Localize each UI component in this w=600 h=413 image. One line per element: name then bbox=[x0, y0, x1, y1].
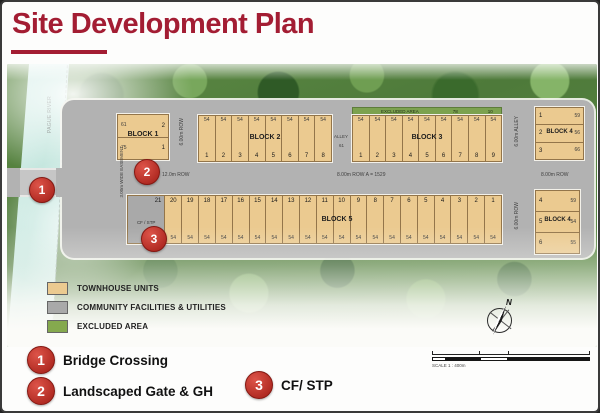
north-label: N bbox=[506, 298, 512, 307]
scale-segment bbox=[508, 358, 589, 360]
lot-unit: 542 bbox=[369, 116, 386, 161]
lot-unit: 5416 bbox=[232, 196, 249, 243]
row-8m-right-label: 8.00m ROW bbox=[541, 172, 569, 178]
block-4-upper: 591562663 bbox=[535, 107, 584, 160]
lot-unit: 5411 bbox=[316, 196, 333, 243]
lot-unit: 547 bbox=[298, 116, 315, 161]
lot-unit: 545 bbox=[265, 116, 282, 161]
lot-unit: 5413 bbox=[282, 196, 299, 243]
block-4-lower: 594545556 bbox=[535, 190, 580, 254]
marker-2-gate: 2 bbox=[134, 159, 160, 185]
lot-unit: 612 bbox=[118, 115, 168, 137]
scale-tick bbox=[589, 351, 590, 355]
marker-3-cfstp: 3 bbox=[141, 226, 167, 252]
callout-landscaped-gate: 2 Landscaped Gate & GH bbox=[27, 377, 213, 405]
lot-unit: 548 bbox=[468, 116, 485, 161]
scale-segment bbox=[480, 358, 508, 360]
page-title: Site Development Plan bbox=[12, 8, 314, 41]
legend: TOWNHOUSE UNITS COMMUNITY FACILITIES & U… bbox=[47, 282, 226, 339]
townhouse-swatch bbox=[47, 282, 68, 295]
lot-unit: 5420 bbox=[164, 196, 181, 243]
block-3: 541542543544545546547548549 bbox=[352, 115, 502, 162]
lot-unit: 546 bbox=[400, 196, 417, 243]
marker-1-bridge: 1 bbox=[29, 177, 55, 203]
row-8m-main-label: 8.00m ROW A = 1529 bbox=[337, 172, 386, 178]
legend-row-townhouse: TOWNHOUSE UNITS bbox=[47, 282, 226, 295]
compass-rose: N bbox=[486, 305, 516, 335]
lot-unit: 541 bbox=[484, 196, 501, 243]
lot-unit: 547 bbox=[383, 196, 400, 243]
lot-unit: 546 bbox=[435, 116, 452, 161]
scale-bar: SCALE 1 : 400m bbox=[432, 354, 590, 368]
block-2: 541542543544545546547548 bbox=[198, 115, 332, 162]
legend-label: EXCLUDED AREA bbox=[77, 322, 148, 331]
callout-bridge-crossing: 1 Bridge Crossing bbox=[27, 346, 168, 374]
lot-unit: 549 bbox=[350, 196, 367, 243]
excluded-area-strip: EXCLUDED AREA 78 10 bbox=[352, 107, 502, 115]
callout-1-label: Bridge Crossing bbox=[63, 353, 168, 368]
excluded-area-number: 10 bbox=[488, 109, 493, 114]
lot-unit: 542 bbox=[467, 196, 484, 243]
river-label: PAGUE RIVER bbox=[47, 96, 53, 133]
lot-unit: 5417 bbox=[215, 196, 232, 243]
legend-row-community: COMMUNITY FACILITIES & UTILITIES bbox=[47, 301, 226, 314]
excluded-area-label: EXCLUDED AREA bbox=[381, 109, 419, 114]
title-underline bbox=[11, 50, 107, 54]
lot-unit: 548 bbox=[366, 196, 383, 243]
row-6m-right-label: 6.00m ROW bbox=[514, 202, 520, 230]
alley-6m-right-label: 6.00m ALLEY bbox=[514, 116, 520, 147]
callout-3-label: CF/ STP bbox=[281, 378, 333, 393]
callout-cf-stp: 3 CF/ STP bbox=[245, 371, 333, 399]
excluded-swatch bbox=[47, 320, 68, 333]
lot-unit: 549 bbox=[485, 116, 502, 161]
scale-rule bbox=[432, 354, 590, 355]
legend-label: COMMUNITY FACILITIES & UTILITIES bbox=[77, 303, 226, 312]
lot-unit: 5418 bbox=[198, 196, 215, 243]
lot-unit: 5419 bbox=[181, 196, 198, 243]
legend-label: TOWNHOUSE UNITS bbox=[77, 284, 159, 293]
lot-unit: 591 bbox=[536, 108, 583, 124]
lot-unit: 5414 bbox=[265, 196, 282, 243]
scale-tick bbox=[479, 351, 480, 355]
lot-unit: 5415 bbox=[249, 196, 266, 243]
fade-overlay bbox=[7, 64, 597, 80]
scale-label: SCALE 1 : 400m bbox=[432, 363, 590, 368]
lot-unit: 544 bbox=[402, 116, 419, 161]
lot-unit: 543 bbox=[385, 116, 402, 161]
scale-tick bbox=[508, 351, 509, 355]
excluded-area-number: 78 bbox=[453, 109, 458, 114]
scale-segments bbox=[432, 357, 590, 361]
alley-top-label: ALLEY bbox=[334, 134, 348, 139]
block-1: 612751 bbox=[117, 114, 169, 160]
callout-2-label: Landscaped Gate & GH bbox=[63, 384, 213, 399]
lot-unit: 545 bbox=[418, 116, 435, 161]
scale-segment bbox=[445, 358, 479, 360]
community-swatch bbox=[47, 301, 68, 314]
lot-unit: 751 bbox=[118, 137, 168, 160]
lot-unit: 541 bbox=[199, 116, 215, 161]
alley-top-number: 61 bbox=[339, 143, 344, 148]
lot-unit: 556 bbox=[536, 232, 579, 253]
row-6m-left-label: 6.00m ROW bbox=[179, 118, 185, 146]
lot-unit: 542 bbox=[215, 116, 232, 161]
scale-segment bbox=[433, 358, 445, 360]
legend-row-excluded: EXCLUDED AREA bbox=[47, 320, 226, 333]
lot-unit: 546 bbox=[281, 116, 298, 161]
lot-unit: 5412 bbox=[299, 196, 316, 243]
lot-unit: 663 bbox=[536, 142, 583, 159]
block-5: CF / STP21542054195418541754165415541454… bbox=[127, 195, 502, 244]
slide-frame: Site Development Plan PAGUE RIVER 612751… bbox=[0, 0, 600, 413]
lot-unit: 594 bbox=[536, 191, 579, 211]
lot-unit: 543 bbox=[450, 196, 467, 243]
lot-unit: 544 bbox=[248, 116, 265, 161]
row-12m-label: 12.0m ROW bbox=[162, 172, 190, 178]
easement-label: 3.00m WIDE EASEMENT bbox=[119, 146, 124, 198]
scale-tick bbox=[432, 351, 433, 355]
lot-unit: 543 bbox=[231, 116, 248, 161]
lot-unit: 548 bbox=[314, 116, 331, 161]
lot-unit: 562 bbox=[536, 124, 583, 141]
lot-unit: 544 bbox=[434, 196, 451, 243]
lot-unit: 541 bbox=[353, 116, 369, 161]
lot-unit: 545 bbox=[417, 196, 434, 243]
lot-unit: 545 bbox=[536, 211, 579, 232]
lot-unit: 5410 bbox=[333, 196, 350, 243]
callout-2-badge: 2 bbox=[27, 377, 55, 405]
callout-1-badge: 1 bbox=[27, 346, 55, 374]
lot-unit: 547 bbox=[451, 116, 468, 161]
callout-3-badge: 3 bbox=[245, 371, 273, 399]
